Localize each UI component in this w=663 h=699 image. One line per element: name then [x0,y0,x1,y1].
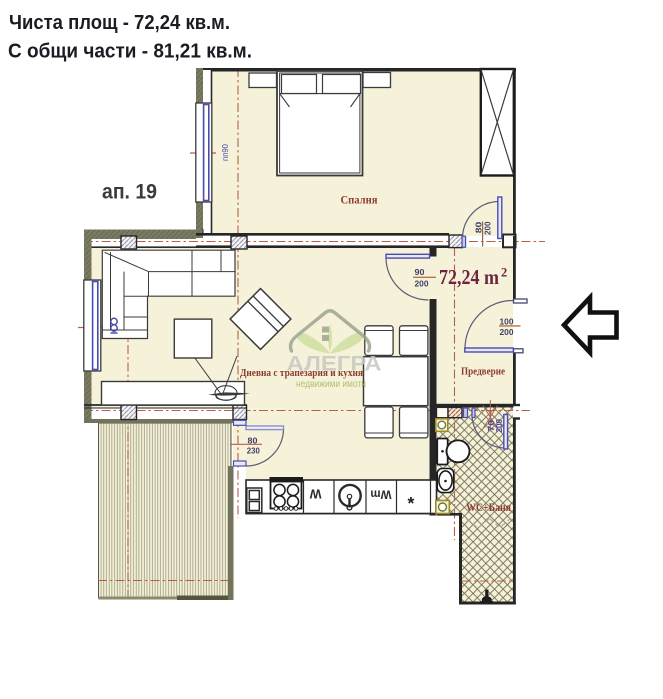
svg-text:WC+Баня: WC+Баня [466,502,511,514]
svg-text:2: 2 [501,266,507,280]
svg-text:ап. 19: ап. 19 [102,181,157,204]
svg-text:90: 90 [415,267,425,277]
svg-text:С общи части - 81,21 кв.м.: С общи части - 81,21 кв.м. [8,40,252,63]
svg-text:Предверие: Предверие [461,367,505,378]
svg-text:W: W [310,487,322,501]
svg-text:пп90: пп90 [220,144,230,161]
svg-text:Чиста площ - 72,24 кв.м.: Чиста площ - 72,24 кв.м. [9,11,230,34]
svg-text:200: 200 [494,419,504,433]
svg-text:200: 200 [500,327,514,337]
svg-text:200: 200 [482,221,492,235]
svg-text:*: * [408,493,415,513]
svg-text:230: 230 [247,445,260,455]
svg-text:80: 80 [248,435,258,445]
svg-text:100: 100 [500,316,514,326]
svg-text:Дневна с трапезария и кухня: Дневна с трапезария и кухня [240,367,363,379]
svg-text:недвижими имоти: недвижими имоти [296,378,366,390]
svg-text:Спалня: Спалня [341,192,378,206]
svg-text:72,24 m: 72,24 m [439,265,499,289]
svg-text:Wm: Wm [370,488,391,500]
svg-text:200: 200 [415,279,429,289]
